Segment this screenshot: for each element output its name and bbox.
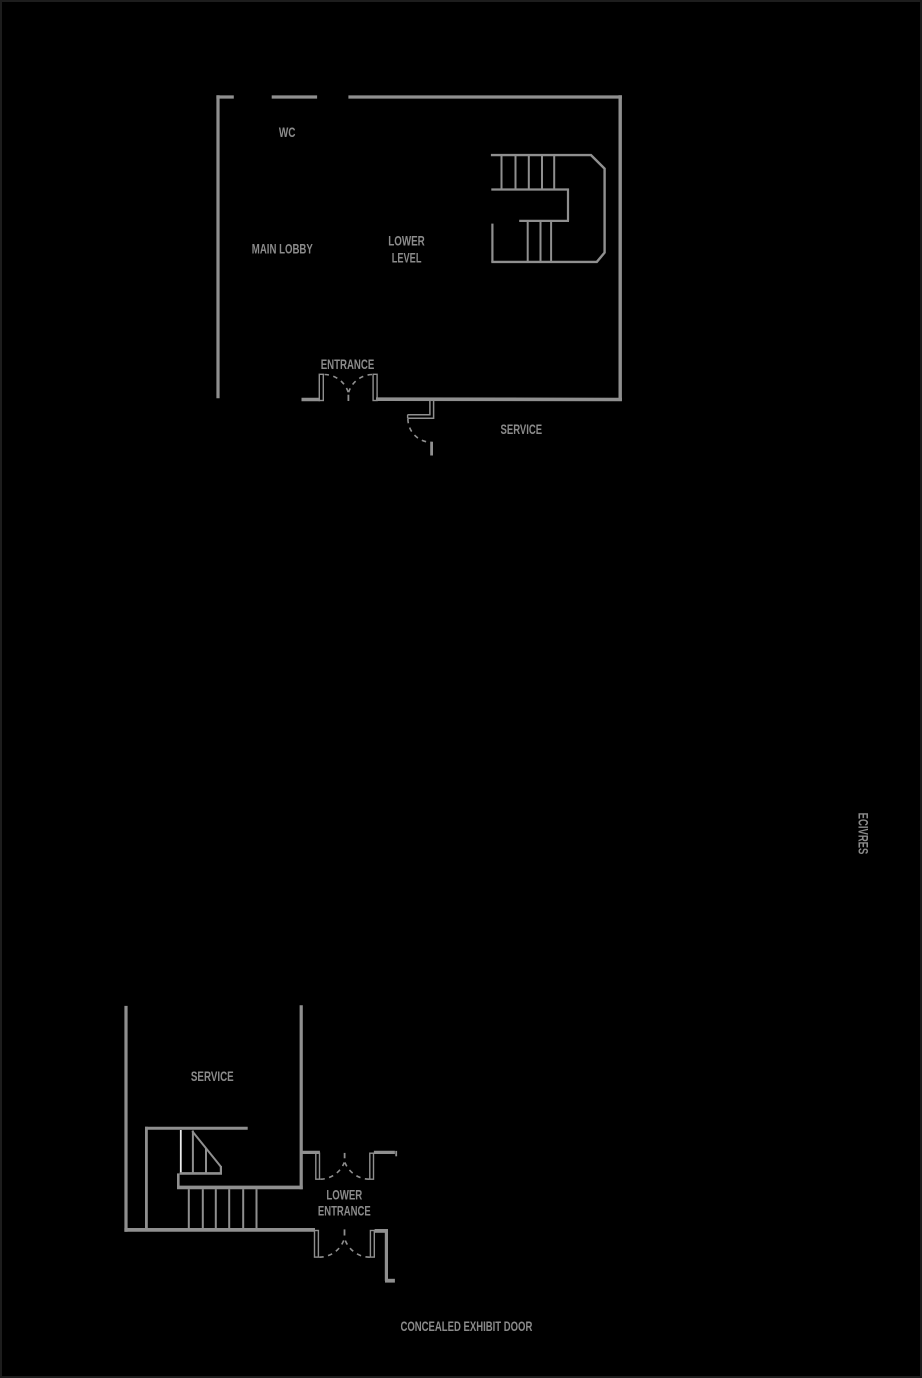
svg-text:LOWER: LOWER [388,233,425,249]
svg-text:WC: WC [279,124,296,140]
svg-text:CONCEALED EXHIBIT DOOR: CONCEALED EXHIBIT DOOR [400,1318,532,1334]
svg-text:SERVICE: SERVICE [501,421,543,437]
svg-text:SERVICE: SERVICE [191,1068,234,1084]
svg-text:ENTRANCE: ENTRANCE [318,1202,371,1218]
svg-text:ECIVRES: ECIVRES [856,813,872,855]
svg-text:LOWER: LOWER [326,1187,362,1203]
svg-text:LEVEL: LEVEL [392,249,422,265]
svg-text:MAIN LOBBY: MAIN LOBBY [252,241,313,257]
svg-text:ENTRANCE: ENTRANCE [321,356,375,372]
